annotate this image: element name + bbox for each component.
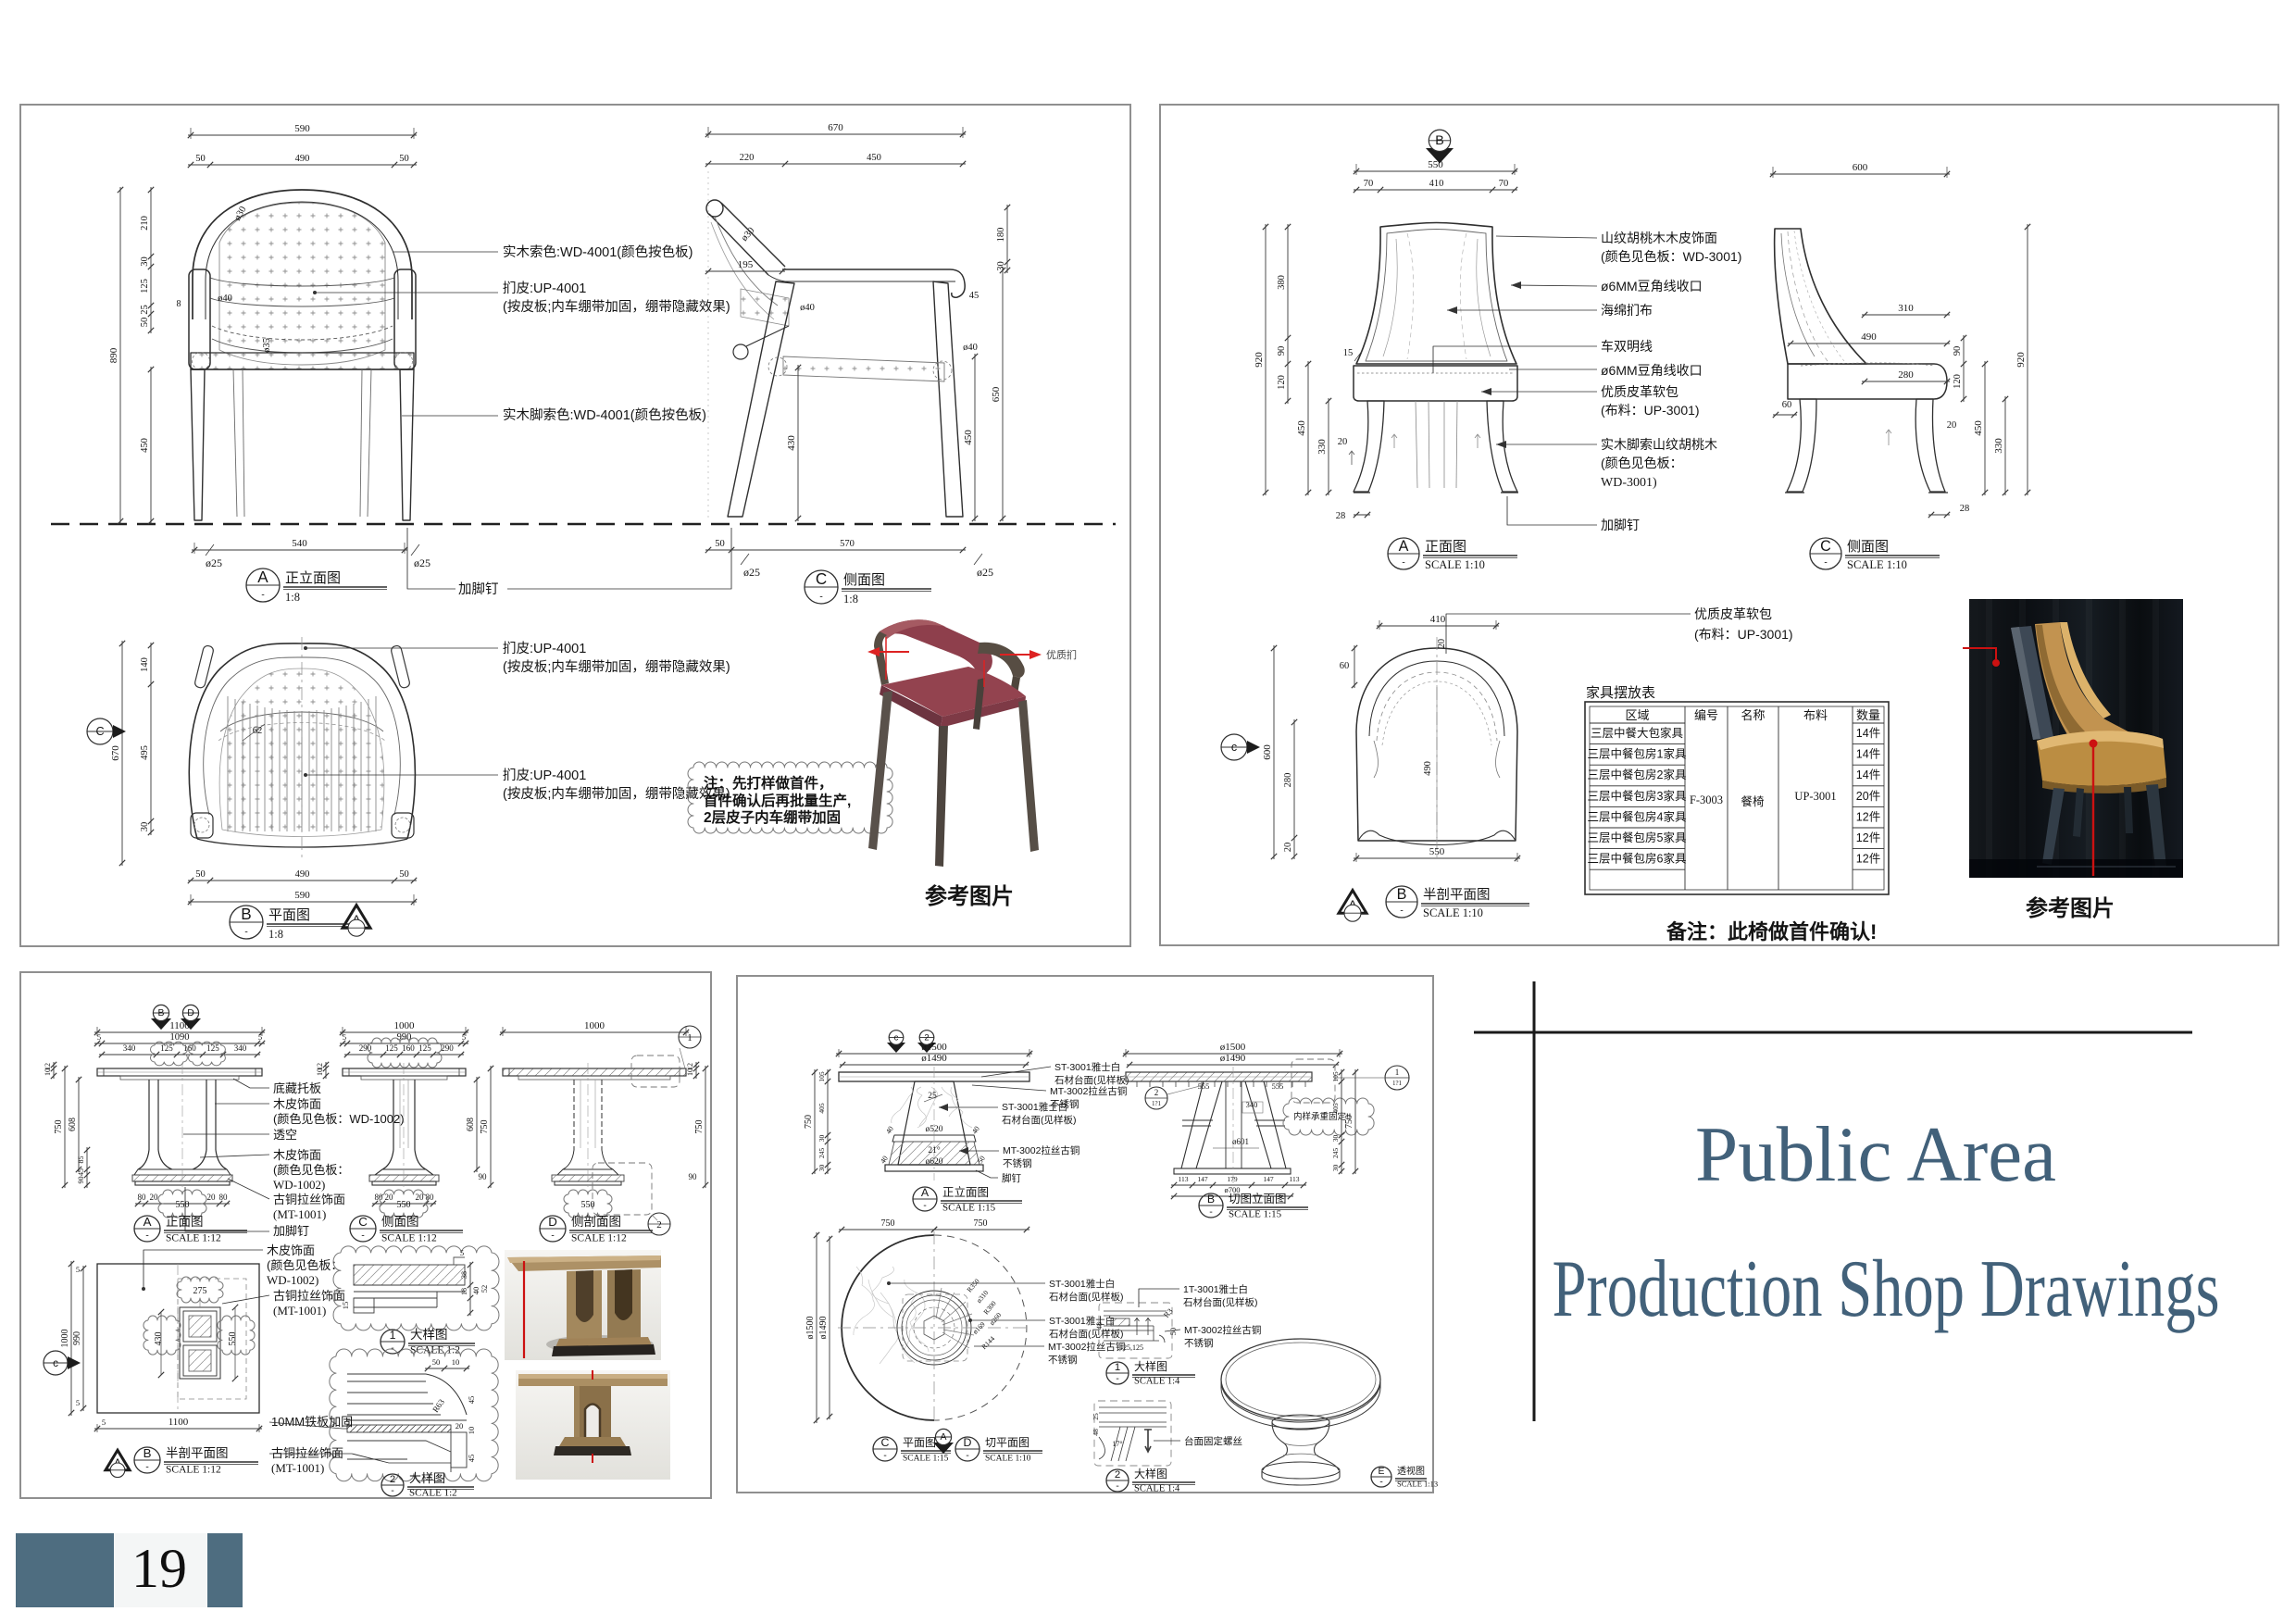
svg-text:布料: 布料 xyxy=(1803,708,1828,722)
svg-text:670: 670 xyxy=(828,122,843,133)
svg-text:古铜拉丝饰面: 古铜拉丝饰面 xyxy=(273,1193,345,1206)
svg-text:20: 20 xyxy=(1283,843,1293,853)
svg-text:正立面图: 正立面图 xyxy=(285,570,341,586)
svg-text:名称: 名称 xyxy=(1741,708,1765,722)
svg-text:ø1500: ø1500 xyxy=(921,1042,947,1053)
svg-text:大样图: 大样图 xyxy=(409,1471,445,1485)
svg-text:920: 920 xyxy=(2015,352,2027,368)
svg-text:113: 113 xyxy=(1179,1175,1189,1183)
svg-text:ø25: ø25 xyxy=(743,566,760,579)
svg-text:14件: 14件 xyxy=(1856,727,1880,740)
svg-text:90: 90 xyxy=(1277,346,1287,356)
svg-text:ø25: ø25 xyxy=(206,556,222,569)
svg-text:SCALE 1:12: SCALE 1:12 xyxy=(166,1464,221,1475)
svg-text:30: 30 xyxy=(817,1135,826,1143)
svg-text:切平面图: 切平面图 xyxy=(985,1436,1029,1449)
svg-text:注：先打样做首件，: 注：先打样做首件， xyxy=(704,774,833,792)
svg-text:410: 410 xyxy=(1429,179,1444,189)
svg-text:(按皮板;内车绷带加固，绷带隐藏效果): (按皮板;内车绷带加固，绷带隐藏效果) xyxy=(503,298,730,315)
svg-text:38: 38 xyxy=(460,1271,468,1279)
svg-text:(按皮板;内车绷带加固，绷带隐藏效果): (按皮板;内车绷带加固，绷带隐藏效果) xyxy=(503,785,730,802)
svg-text:(MT-1001): (MT-1001) xyxy=(273,1304,326,1318)
svg-text:MT-3002拉丝古铜: MT-3002拉丝古铜 xyxy=(1048,1341,1125,1353)
svg-text:SCALE 1:13: SCALE 1:13 xyxy=(1397,1480,1438,1489)
svg-text:(颜色见色板：: (颜色见色板： xyxy=(273,1163,349,1177)
svg-text:5: 5 xyxy=(343,1032,346,1042)
svg-text:50: 50 xyxy=(1168,1328,1178,1336)
svg-text:ST-3001雅士白: ST-3001雅士白 xyxy=(1054,1061,1120,1073)
svg-text:750: 750 xyxy=(694,1120,705,1134)
svg-text:50: 50 xyxy=(399,869,409,880)
svg-text:450: 450 xyxy=(867,153,881,163)
svg-text:1000: 1000 xyxy=(584,1020,605,1031)
svg-text:(布料：UP-3001): (布料：UP-3001) xyxy=(1601,403,1700,418)
svg-text:21°: 21° xyxy=(928,1145,941,1156)
svg-text:14件: 14件 xyxy=(1856,768,1880,781)
svg-text:-: - xyxy=(391,1343,393,1353)
svg-text:不锈钢: 不锈钢 xyxy=(1048,1354,1078,1366)
svg-text:-: - xyxy=(1209,1206,1212,1217)
svg-text:-: - xyxy=(923,1200,926,1210)
svg-text:ø620: ø620 xyxy=(926,1157,943,1167)
svg-text:半剖平面图: 半剖平面图 xyxy=(1423,887,1491,903)
svg-text:10: 10 xyxy=(452,1357,460,1367)
svg-text:石材台面(见样板): 石材台面(见样板) xyxy=(1054,1074,1129,1086)
svg-text:木皮饰面: 木皮饰面 xyxy=(267,1243,315,1257)
svg-text:405: 405 xyxy=(1331,1103,1340,1114)
svg-text:ST-3001雅士白: ST-3001雅士白 xyxy=(1049,1315,1115,1327)
svg-text:正立面图: 正立面图 xyxy=(942,1185,989,1199)
svg-text:-: - xyxy=(1400,906,1403,916)
svg-text:SCALE 1:2: SCALE 1:2 xyxy=(409,1487,457,1498)
svg-text:ø6MM豆角线收口: ø6MM豆角线收口 xyxy=(1601,279,1703,294)
svg-text:山纹胡桃木木皮饰面: 山纹胡桃木木皮饰面 xyxy=(1601,231,1717,245)
svg-text:125,125: 125,125 xyxy=(1119,1343,1143,1352)
svg-text:50: 50 xyxy=(195,154,206,164)
svg-text:ø6MM豆角线收口: ø6MM豆角线收口 xyxy=(1601,363,1703,378)
svg-text:125: 125 xyxy=(206,1043,219,1053)
svg-text:(按皮板;内车绷带加固，绷带隐藏效果): (按皮板;内车绷带加固，绷带隐藏效果) xyxy=(503,658,730,675)
svg-text:48: 48 xyxy=(1092,1429,1100,1436)
svg-text:优质扪: 优质扪 xyxy=(1046,648,1077,661)
svg-text:透空: 透空 xyxy=(273,1128,297,1142)
svg-text:160: 160 xyxy=(402,1043,415,1053)
svg-text:参考图片: 参考图片 xyxy=(925,883,1014,909)
svg-text:28: 28 xyxy=(1336,511,1346,521)
svg-text:210: 210 xyxy=(140,216,150,231)
svg-text:-: - xyxy=(145,1230,148,1241)
svg-text:ø601: ø601 xyxy=(1232,1137,1249,1146)
svg-text:木皮饰面: 木皮饰面 xyxy=(273,1097,321,1111)
svg-text:ø25: ø25 xyxy=(414,556,430,569)
svg-text:125: 125 xyxy=(160,1043,173,1053)
svg-text:平面图: 平面图 xyxy=(268,907,310,923)
svg-text:550: 550 xyxy=(581,1200,595,1210)
svg-text:80: 80 xyxy=(426,1193,435,1202)
svg-text:A: A xyxy=(921,1186,930,1199)
svg-text:70: 70 xyxy=(1364,179,1374,189)
svg-text:-: - xyxy=(883,1450,886,1460)
svg-text:48: 48 xyxy=(1095,1322,1104,1330)
svg-text:(颜色见色板：WD-3001): (颜色见色板：WD-3001) xyxy=(1601,249,1741,264)
svg-text:1: 1 xyxy=(1395,1068,1400,1077)
svg-text:-: - xyxy=(1379,1477,1382,1487)
svg-text:890: 890 xyxy=(108,347,119,363)
svg-text:990: 990 xyxy=(72,1331,82,1345)
svg-text:MT-3002拉丝古铜: MT-3002拉丝古铜 xyxy=(1184,1324,1261,1336)
svg-text:-: - xyxy=(145,1462,148,1472)
svg-text:8: 8 xyxy=(177,299,181,309)
svg-text:80: 80 xyxy=(138,1193,147,1202)
svg-text:125: 125 xyxy=(140,279,150,294)
svg-text:330: 330 xyxy=(1993,438,2004,454)
svg-text:50: 50 xyxy=(715,539,725,549)
svg-text:2: 2 xyxy=(1115,1469,1120,1480)
svg-text:C: C xyxy=(816,570,827,588)
svg-text:30: 30 xyxy=(996,261,1006,271)
svg-text:正面图: 正面图 xyxy=(166,1215,204,1229)
svg-text:1: 1 xyxy=(390,1329,396,1342)
svg-text:15: 15 xyxy=(341,1302,350,1310)
svg-text:C: C xyxy=(358,1215,368,1229)
svg-text:SCALE 1:12: SCALE 1:12 xyxy=(381,1232,437,1243)
svg-text:80: 80 xyxy=(375,1193,384,1202)
svg-text:大样图: 大样图 xyxy=(410,1328,448,1342)
svg-text:实木脚索山纹胡桃木: 实木脚索山纹胡桃木 xyxy=(1601,437,1717,452)
svg-text:540: 540 xyxy=(292,538,307,549)
svg-text:179: 179 xyxy=(1227,1175,1238,1183)
svg-text:参考图片: 参考图片 xyxy=(2026,895,2115,921)
svg-text:F-3003: F-3003 xyxy=(1690,793,1723,806)
svg-text:450: 450 xyxy=(1973,420,1984,436)
svg-text:28: 28 xyxy=(1960,504,1970,514)
svg-text:30: 30 xyxy=(1331,1135,1340,1143)
svg-text:加脚钉: 加脚钉 xyxy=(273,1224,309,1238)
svg-text:147: 147 xyxy=(1197,1175,1208,1183)
svg-text:160: 160 xyxy=(183,1043,196,1053)
svg-text:内样承重固定!!: 内样承重固定!! xyxy=(1293,1111,1351,1122)
svg-text:-: - xyxy=(391,1486,393,1496)
svg-text:45: 45 xyxy=(467,1396,476,1405)
svg-text:5: 5 xyxy=(76,1398,80,1407)
svg-text:ø1490: ø1490 xyxy=(921,1053,947,1064)
svg-text:570: 570 xyxy=(840,539,855,549)
svg-text:实木索色:WD-4001(颜色按色板): 实木索色:WD-4001(颜色按色板) xyxy=(503,244,693,260)
svg-text:ø1500: ø1500 xyxy=(805,1317,816,1340)
svg-text:SCALE 1:4: SCALE 1:4 xyxy=(1134,1376,1180,1386)
svg-text:555: 555 xyxy=(1198,1081,1210,1091)
svg-text:(颜色见色板：: (颜色见色板： xyxy=(1601,456,1683,470)
svg-text:450: 450 xyxy=(963,430,974,445)
svg-text:105: 105 xyxy=(817,1071,826,1082)
svg-text:380: 380 xyxy=(1277,275,1287,290)
svg-text:E: E xyxy=(1379,1467,1385,1477)
svg-text:90: 90 xyxy=(689,1172,698,1181)
svg-text:SCALE 1:12: SCALE 1:12 xyxy=(166,1232,221,1243)
svg-text:ø1490: ø1490 xyxy=(1220,1053,1246,1064)
svg-text:600: 600 xyxy=(1262,744,1273,760)
svg-text:18: 18 xyxy=(460,1288,468,1295)
svg-text:c: c xyxy=(1231,741,1237,754)
svg-text:600: 600 xyxy=(1853,162,1868,173)
svg-text:ø520: ø520 xyxy=(926,1125,943,1134)
svg-text:家具摆放表: 家具摆放表 xyxy=(1586,685,1655,701)
svg-text:B: B xyxy=(143,1446,152,1460)
svg-text:侧面图: 侧面图 xyxy=(843,572,885,588)
svg-text:25: 25 xyxy=(140,305,150,315)
svg-text:52: 52 xyxy=(480,1285,489,1293)
svg-text:ø40: ø40 xyxy=(218,294,232,304)
svg-text:2: 2 xyxy=(1154,1088,1159,1097)
svg-text:石材台面(见样板): 石材台面(见样板) xyxy=(1049,1328,1124,1340)
svg-text:608: 608 xyxy=(466,1118,476,1131)
svg-text:50: 50 xyxy=(399,154,409,164)
svg-text:ST-3001雅士白: ST-3001雅士白 xyxy=(1049,1278,1115,1290)
svg-text:10: 10 xyxy=(316,1068,324,1076)
svg-text:490: 490 xyxy=(295,869,310,880)
svg-text:590: 590 xyxy=(294,890,310,901)
svg-text:30: 30 xyxy=(140,822,150,832)
svg-text:20: 20 xyxy=(385,1193,394,1202)
svg-text:5: 5 xyxy=(97,1032,101,1042)
svg-text:1000: 1000 xyxy=(60,1330,70,1348)
svg-text:不锈钢: 不锈钢 xyxy=(1003,1157,1032,1169)
svg-text:50: 50 xyxy=(140,318,150,328)
svg-text:90: 90 xyxy=(1953,346,1963,356)
svg-text:优质皮革软包: 优质皮革软包 xyxy=(1601,384,1678,399)
svg-text:侧面图: 侧面图 xyxy=(1847,539,1889,555)
svg-text:-: - xyxy=(261,590,264,600)
svg-text:c: c xyxy=(894,1033,899,1043)
svg-text:20: 20 xyxy=(1437,639,1447,648)
svg-text:113: 113 xyxy=(1290,1175,1300,1183)
svg-text:30: 30 xyxy=(1331,1165,1340,1172)
svg-text:280: 280 xyxy=(1283,773,1293,788)
svg-text:三层中餐包房2家具: 三层中餐包房2家具 xyxy=(1588,768,1687,781)
svg-text:495: 495 xyxy=(140,745,150,760)
svg-text:750: 750 xyxy=(881,1218,895,1229)
svg-text:245: 245 xyxy=(1331,1148,1340,1159)
svg-text:490: 490 xyxy=(1861,331,1877,343)
svg-text:20: 20 xyxy=(150,1193,159,1202)
svg-text:15: 15 xyxy=(1343,348,1354,358)
svg-text:A: A xyxy=(1399,538,1409,555)
svg-text:650: 650 xyxy=(991,386,1002,402)
svg-text:20: 20 xyxy=(1947,420,1957,431)
svg-text:编号: 编号 xyxy=(1694,708,1718,722)
svg-text:(MT-1001): (MT-1001) xyxy=(273,1207,326,1221)
svg-text:ø25: ø25 xyxy=(977,566,993,579)
svg-text:(颜色见色板：: (颜色见色板： xyxy=(267,1258,343,1272)
svg-text:ø1500: ø1500 xyxy=(1220,1042,1246,1053)
svg-text:90: 90 xyxy=(77,1177,85,1184)
svg-text:1: 1 xyxy=(687,1032,693,1043)
svg-text:750: 750 xyxy=(480,1120,490,1134)
svg-text:三层中餐包房6家具: 三层中餐包房6家具 xyxy=(1588,852,1687,866)
svg-text:5: 5 xyxy=(462,1032,466,1042)
svg-text:木皮饰面: 木皮饰面 xyxy=(273,1148,321,1162)
svg-text:12件: 12件 xyxy=(1856,853,1880,866)
svg-text:-: - xyxy=(1116,1481,1118,1492)
svg-text:数量: 数量 xyxy=(1856,708,1880,722)
svg-text:侧面图: 侧面图 xyxy=(381,1215,419,1229)
svg-text:C: C xyxy=(1820,538,1831,555)
svg-text:1:8: 1:8 xyxy=(268,928,283,941)
svg-text:C: C xyxy=(95,725,104,738)
svg-text:WD-1002): WD-1002) xyxy=(273,1178,325,1192)
svg-text:1?1: 1?1 xyxy=(1392,1080,1403,1087)
svg-text:1:8: 1:8 xyxy=(285,591,300,604)
svg-text:60: 60 xyxy=(1340,661,1350,671)
svg-text:大样图: 大样图 xyxy=(1134,1467,1167,1480)
svg-text:备注：此椅做首件确认!: 备注：此椅做首件确认! xyxy=(1666,920,1877,943)
svg-text:85: 85 xyxy=(77,1156,85,1164)
svg-text:30: 30 xyxy=(140,256,150,267)
svg-text:920: 920 xyxy=(1254,352,1265,368)
svg-text:实木脚索色:WD-4001(颜色按色板): 实木脚索色:WD-4001(颜色按色板) xyxy=(503,406,706,423)
svg-text:SCALE 1:15: SCALE 1:15 xyxy=(903,1454,949,1463)
svg-text:三层中餐包房3家具: 三层中餐包房3家具 xyxy=(1588,789,1687,803)
svg-text:105: 105 xyxy=(1331,1071,1340,1082)
svg-text:B: B xyxy=(1207,1193,1215,1206)
svg-text:扪皮:UP-4001: 扪皮:UP-4001 xyxy=(503,281,586,296)
svg-text:90: 90 xyxy=(479,1172,488,1181)
svg-text:古铜拉丝饰面: 古铜拉丝饰面 xyxy=(271,1446,343,1460)
svg-text:25: 25 xyxy=(1092,1413,1100,1420)
svg-text:Production Shop Drawings: Production Shop Drawings xyxy=(1553,1244,2220,1334)
svg-text:扪皮:UP-4001: 扪皮:UP-4001 xyxy=(503,768,586,783)
svg-text:10: 10 xyxy=(467,1427,476,1435)
svg-text:550: 550 xyxy=(397,1200,411,1210)
svg-text:-: - xyxy=(361,1230,364,1241)
svg-text:加脚钉: 加脚钉 xyxy=(458,581,499,597)
svg-text:底藏托板: 底藏托板 xyxy=(273,1081,321,1095)
svg-text:45: 45 xyxy=(467,1455,476,1463)
svg-text:SCALE 1:15: SCALE 1:15 xyxy=(942,1202,996,1213)
svg-text:275: 275 xyxy=(193,1286,207,1296)
svg-text:半剖平面图: 半剖平面图 xyxy=(166,1446,229,1460)
svg-text:220: 220 xyxy=(740,153,755,163)
svg-text:ø1490: ø1490 xyxy=(818,1317,829,1340)
svg-text:120: 120 xyxy=(1953,374,1963,389)
svg-text:SCALE 1:10: SCALE 1:10 xyxy=(985,1454,1031,1463)
svg-text:B: B xyxy=(241,906,251,923)
svg-text:750: 750 xyxy=(804,1115,814,1129)
svg-text:550: 550 xyxy=(1429,846,1445,857)
svg-text:D: D xyxy=(548,1215,557,1229)
svg-text:B: B xyxy=(1435,133,1444,148)
svg-text:WD-1002): WD-1002) xyxy=(267,1273,318,1287)
svg-text:-: - xyxy=(1824,557,1827,568)
svg-text:1000: 1000 xyxy=(394,1020,416,1031)
svg-text:不锈钢: 不锈钢 xyxy=(1184,1337,1214,1349)
svg-text:切图立面图: 切图立面图 xyxy=(1229,1192,1287,1206)
svg-text:10MM铁板加固: 10MM铁板加固 xyxy=(271,1415,353,1429)
svg-text:5: 5 xyxy=(258,1032,262,1042)
svg-text:340: 340 xyxy=(123,1043,136,1053)
svg-text:A: A xyxy=(257,568,268,586)
svg-text:脚钉: 脚钉 xyxy=(1002,1172,1022,1184)
svg-text:-: - xyxy=(244,927,247,937)
svg-text:60: 60 xyxy=(1782,400,1792,410)
svg-text:海绵扪布: 海绵扪布 xyxy=(1601,303,1653,318)
svg-text:Public Area: Public Area xyxy=(1695,1111,2056,1198)
svg-text:10: 10 xyxy=(44,1068,52,1076)
svg-text:430: 430 xyxy=(154,1332,164,1346)
svg-text:45: 45 xyxy=(77,1168,85,1176)
svg-text:首件确认后再批量生产,: 首件确认后再批量生产, xyxy=(704,792,851,809)
svg-text:(布料：UP-3001): (布料：UP-3001) xyxy=(1694,627,1793,642)
svg-text:30: 30 xyxy=(817,1165,826,1172)
svg-text:20: 20 xyxy=(207,1193,217,1202)
svg-text:125: 125 xyxy=(418,1043,431,1053)
svg-text:555: 555 xyxy=(1272,1081,1284,1091)
svg-text:侧剖面图: 侧剖面图 xyxy=(571,1215,621,1229)
svg-text:A: A xyxy=(143,1215,152,1229)
svg-text:5: 5 xyxy=(76,1265,80,1274)
svg-text:石材台面(见样板): 石材台面(见样板) xyxy=(1002,1114,1077,1126)
svg-text:UP-3001: UP-3001 xyxy=(1794,790,1836,803)
svg-text:SCALE 1:15: SCALE 1:15 xyxy=(1229,1208,1282,1219)
svg-text:扪皮:UP-4001: 扪皮:UP-4001 xyxy=(503,641,586,656)
svg-text:125: 125 xyxy=(385,1043,398,1053)
svg-text:SCALE 1:10: SCALE 1:10 xyxy=(1423,906,1483,919)
svg-text:490: 490 xyxy=(1423,761,1433,776)
svg-text:180: 180 xyxy=(996,228,1006,243)
svg-text:C: C xyxy=(881,1436,890,1449)
svg-text:2层皮子内车绷带加固: 2层皮子内车绷带加固 xyxy=(704,808,841,826)
svg-text:-: - xyxy=(819,592,822,602)
svg-text:D: D xyxy=(187,1008,194,1018)
svg-text:-: - xyxy=(1116,1374,1118,1384)
svg-text:310: 310 xyxy=(1898,303,1914,314)
svg-text:590: 590 xyxy=(294,123,310,134)
svg-text:147: 147 xyxy=(1263,1175,1274,1183)
svg-text:490: 490 xyxy=(295,154,310,164)
svg-text:550: 550 xyxy=(1428,159,1443,170)
svg-text:1090: 1090 xyxy=(170,1032,190,1043)
svg-text:1100: 1100 xyxy=(168,1417,189,1428)
svg-text:50: 50 xyxy=(432,1357,441,1367)
svg-text:1T-3001雅士白: 1T-3001雅士白 xyxy=(1183,1283,1248,1295)
svg-text:SCALE 1:12: SCALE 1:12 xyxy=(571,1232,627,1243)
svg-text:280: 280 xyxy=(1898,369,1914,381)
svg-text:台面固定螺丝: 台面固定螺丝 xyxy=(1184,1435,1242,1447)
svg-text:195: 195 xyxy=(738,259,754,270)
svg-text:405: 405 xyxy=(817,1103,826,1114)
svg-text:优质皮革软包: 优质皮革软包 xyxy=(1694,606,1772,621)
svg-text:45: 45 xyxy=(969,291,980,301)
svg-text:450: 450 xyxy=(140,438,150,453)
svg-text:290: 290 xyxy=(441,1043,454,1053)
svg-text:12件: 12件 xyxy=(1856,831,1880,844)
svg-text:550: 550 xyxy=(176,1200,190,1210)
svg-text:430: 430 xyxy=(786,435,797,451)
svg-text:1?1: 1?1 xyxy=(1152,1100,1162,1107)
svg-text:17°: 17° xyxy=(1112,1440,1122,1448)
svg-text:-: - xyxy=(1402,557,1404,568)
svg-text:三层中餐包房1家具: 三层中餐包房1家具 xyxy=(1588,747,1687,761)
svg-text:SCALE 1:4: SCALE 1:4 xyxy=(1134,1483,1180,1493)
svg-text:50: 50 xyxy=(195,869,206,880)
svg-text:c: c xyxy=(53,1357,58,1369)
svg-text:20: 20 xyxy=(1338,437,1348,447)
svg-text:19: 19 xyxy=(131,1538,187,1599)
svg-text:14件: 14件 xyxy=(1856,748,1880,761)
svg-text:550: 550 xyxy=(228,1332,238,1346)
svg-text:大样图: 大样图 xyxy=(1134,1359,1167,1373)
svg-text:-: - xyxy=(966,1450,968,1460)
